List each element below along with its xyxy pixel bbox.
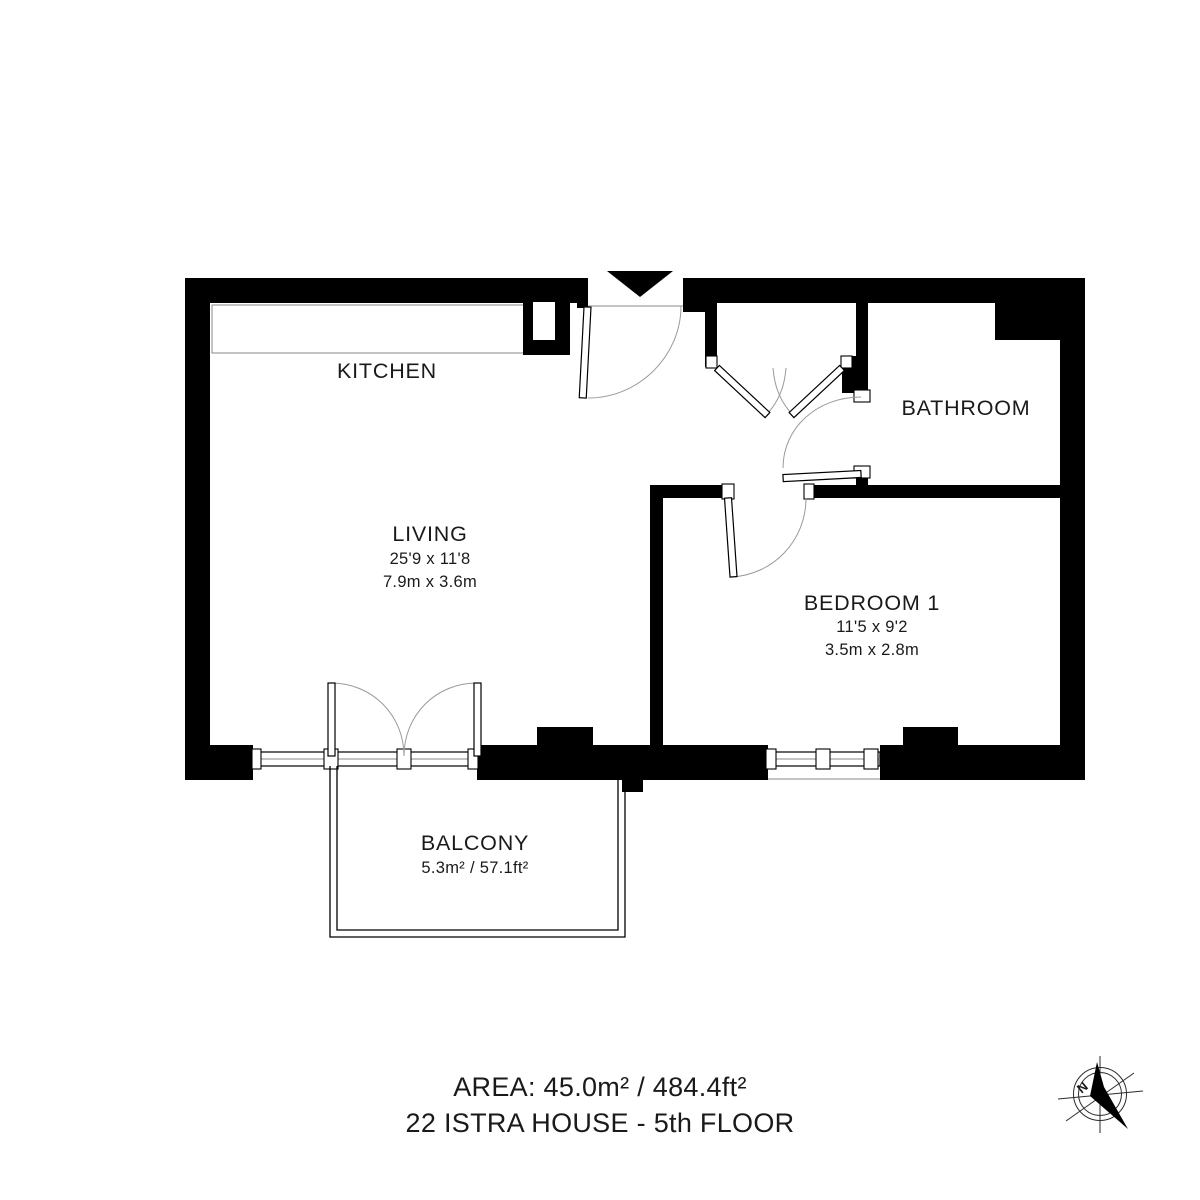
bedroom-door-arc: [731, 498, 806, 577]
floor-plan-svg: KITCHEN LIVING 25'9 x 11'8 7.9m x 3.6m B…: [0, 0, 1200, 1200]
pillar-bedroom: [903, 727, 958, 745]
bedroom-door-leaf: [725, 498, 737, 577]
bedroom-door: [725, 498, 806, 577]
exterior-walls: [185, 278, 1085, 792]
entrance-arrow-icon: [607, 271, 673, 297]
closet-door-arc-left: [767, 368, 786, 414]
kitchen-duct-recess: [533, 302, 555, 340]
entrance-door-leaf: [579, 307, 591, 398]
closet-door-arc-right: [773, 368, 792, 414]
bedroom1-label: BEDROOM 1: [804, 591, 940, 615]
interior-walls: [650, 278, 1085, 780]
balcony-door-leaf-left: [328, 683, 335, 756]
kitchen-label: KITCHEN: [337, 359, 437, 383]
wall-bottom-right: [880, 745, 1085, 780]
entrance-door-arc: [588, 306, 681, 398]
window-post: [252, 749, 261, 769]
wall-top-right: [683, 278, 995, 303]
closet-door-leaf-right: [789, 365, 844, 417]
balcony-door-arc-left: [331, 683, 404, 756]
bathroom-label: BATHROOM: [901, 396, 1030, 420]
footer: AREA: 45.0m² / 484.4ft² 22 ISTRA HOUSE -…: [406, 1072, 795, 1138]
compass-icon: N: [1058, 1056, 1143, 1133]
balcony-french-doors: [328, 683, 481, 756]
kitchen-counter: [212, 305, 527, 353]
living-dims-imperial: 25'9 x 11'8: [390, 550, 471, 568]
balcony-area: 5.3m² / 57.1ft²: [421, 859, 528, 877]
pillar-living: [537, 727, 593, 745]
closet-jamb-right: [841, 356, 852, 368]
wall-closet-left-stub: [705, 278, 717, 367]
bedroom1-dims-imperial: 11'5 x 9'2: [836, 618, 907, 636]
wall-living-bedroom-divider: [650, 487, 663, 780]
bedroom-door-jamb-left: [722, 484, 734, 499]
bedroom-window-post-right: [864, 749, 878, 769]
entrance-door: [579, 271, 683, 398]
bedroom1-dims-metric: 3.5m x 2.8m: [825, 641, 919, 659]
footer-address-line: 22 ISTRA HOUSE - 5th FLOOR: [406, 1108, 795, 1138]
bathroom-door-jamb-top: [854, 390, 870, 402]
living-dims-metric: 7.9m x 3.6m: [383, 573, 477, 591]
wall-left: [185, 278, 210, 780]
living-label: LIVING: [392, 522, 467, 546]
closet-door-leaf-left: [715, 365, 770, 417]
balcony-label: BALCONY: [421, 831, 529, 855]
wall-right: [1060, 278, 1085, 780]
bedroom-door-jamb-right: [804, 484, 814, 499]
wall-bottom-left-foot: [185, 745, 253, 780]
room-labels: KITCHEN LIVING 25'9 x 11'8 7.9m x 3.6m B…: [337, 359, 1031, 877]
closet-jamb-left: [706, 356, 717, 368]
floor-plan-page: KITCHEN LIVING 25'9 x 11'8 7.9m x 3.6m B…: [0, 0, 1200, 1200]
wall-bottom-center: [477, 745, 768, 780]
balcony-door-leaf-right: [474, 683, 481, 756]
kitchen-fixtures: [212, 298, 570, 355]
bedroom-window-post-mid: [816, 749, 830, 769]
closet-doors: [715, 365, 845, 417]
bedroom-window-post-left: [766, 749, 776, 769]
bathroom-door-leaf: [783, 471, 861, 482]
footer-area-line: AREA: 45.0m² / 484.4ft²: [453, 1072, 747, 1102]
wall-bedroom-top-left: [650, 485, 733, 498]
entrance-right-jamb-step: [683, 303, 705, 312]
wall-bedroom-top-right: [808, 485, 1085, 498]
balcony-door-arc-right: [404, 683, 477, 756]
